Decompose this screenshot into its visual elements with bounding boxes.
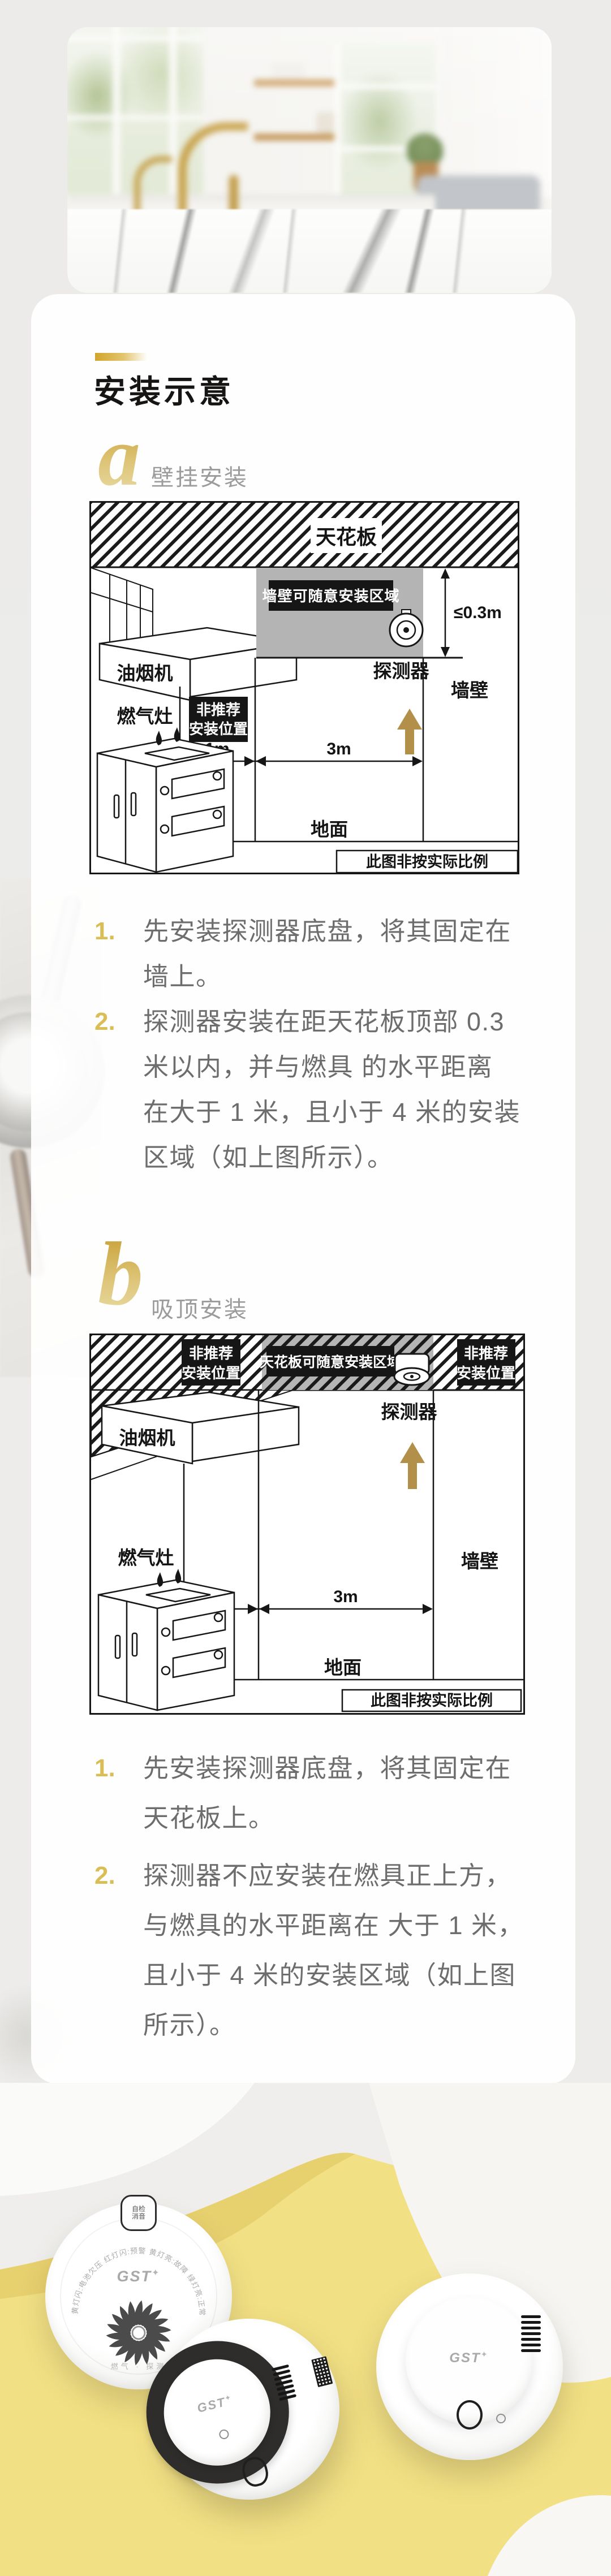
- scale-note: 此图非按实际比例: [371, 1692, 493, 1709]
- ceiling-hatch-band: [91, 503, 518, 567]
- step-number: 1.: [94, 1744, 143, 1843]
- not-recommended-box-right: 非推荐 安装位置: [457, 1339, 515, 1386]
- step-text-line: 天花板上。: [143, 1793, 511, 1843]
- gas-stove-cabinet: [98, 1580, 234, 1710]
- not-recommended-line2: 安装位置: [189, 720, 248, 737]
- gas-stove-cabinet: [97, 739, 233, 872]
- step-text-line: 所示）。: [143, 2000, 524, 2050]
- brand-mark-icon: ✦: [223, 2393, 233, 2403]
- brand-logo: GST✦: [162, 2384, 269, 2424]
- not-recommended-box-left: 非推荐 安装位置: [182, 1339, 240, 1386]
- speaker-grille: [521, 2315, 541, 2355]
- step-text-line: 先安装探测器底盘，将其固定在: [143, 909, 511, 954]
- detector-label: 探测器: [373, 661, 430, 681]
- ceiling-label: 天花板: [316, 525, 377, 549]
- hood-label: 油烟机: [117, 663, 173, 684]
- step-text-line: 探测器不应安装在燃具正上方，: [143, 1851, 524, 1901]
- zone-label: 墙壁可随意安装区域: [262, 588, 399, 605]
- vent-swirl-icon: [102, 2297, 175, 2369]
- section-b-letter: b: [98, 1228, 143, 1319]
- hood-label: 油烟机: [119, 1427, 175, 1448]
- dim-3m-label: 3m: [326, 740, 351, 758]
- step-number: 2.: [94, 999, 143, 1180]
- step-item-a2: 2. 探测器安装在距天花板顶部 0.3 米以内，并与燃具 的水平距离 在大于 1…: [94, 999, 536, 1180]
- step-number: 1.: [94, 909, 143, 999]
- scale-note-box: 此图非按实际比例: [342, 1690, 521, 1711]
- brand-logo: GST✦: [45, 2267, 232, 2285]
- not-recommended-line1: 非推荐: [189, 1345, 233, 1362]
- wall-mount-diagram: 天花板 油烟机 墙壁可随意安装区域: [89, 501, 519, 874]
- section-b-label: 吸顶安装: [151, 1291, 248, 1324]
- floor-label: 地面: [311, 819, 348, 840]
- section-a-label: 壁挂安装: [151, 459, 248, 492]
- section-a-letter: a: [98, 414, 140, 499]
- brand-logo: GST✦: [406, 2350, 532, 2366]
- step-text-line: 墙上。: [143, 954, 511, 999]
- brand-text: GST: [196, 2394, 227, 2415]
- content-card: 安装示意 a 壁挂安装 天花板: [31, 294, 575, 2084]
- detector-label: 探测器: [381, 1401, 438, 1422]
- detector-button-outline: [457, 2400, 483, 2430]
- zone-label: 天花板可随意安装区域: [260, 1354, 401, 1370]
- brand-mark-icon: ✦: [152, 2268, 161, 2278]
- step-text-line: 区域（如上图所示）。: [143, 1135, 520, 1180]
- cert-mark-icon: [496, 2414, 506, 2423]
- not-recommended-box: 非推荐 安装位置: [189, 697, 248, 742]
- title-accent-bar: [95, 353, 147, 361]
- not-recommended-line2: 安装位置: [182, 1365, 240, 1382]
- step-text-line: 探测器安装在距天花板顶部 0.3: [143, 999, 520, 1045]
- brand-text: GST: [117, 2268, 152, 2285]
- step-item-a1: 1. 先安装探测器底盘，将其固定在 墙上。: [94, 909, 536, 999]
- step-text-line: 在大于 1 米，且小于 4 米的安装: [143, 1090, 520, 1135]
- page-title: 安装示意: [94, 366, 234, 412]
- cert-mark-icon: [218, 2428, 230, 2440]
- step-item-b1: 1. 先安装探测器底盘，将其固定在 天花板上。: [94, 1744, 536, 1843]
- product-detail-page: 安装示意 a 壁挂安装 天花板: [0, 0, 611, 2576]
- wall-label: 墙壁: [461, 1551, 498, 1572]
- stove-label: 燃气灶: [118, 1547, 174, 1568]
- step-item-b2: 2. 探测器不应安装在燃具正上方， 与燃具的水平距离在 大于 1 米， 且小于 …: [94, 1851, 536, 2050]
- detector-front-view: GST✦: [376, 2273, 563, 2460]
- step-text-line: 米以内，并与燃具 的水平距离: [143, 1045, 520, 1090]
- floor-label: 地面: [324, 1657, 362, 1678]
- not-recommended-line1: 非推荐: [196, 701, 240, 718]
- not-recommended-line1: 非推荐: [464, 1345, 508, 1362]
- ceiling-mount-diagram: 非推荐 安装位置 非推荐 安装位置 天花板可随意安装区域 探测器: [89, 1334, 525, 1715]
- stove-label: 燃气灶: [117, 706, 173, 727]
- step-text-line: 且小于 4 米的安装区域（如上图: [143, 1951, 524, 2000]
- dim-3m-label: 3m: [333, 1587, 358, 1606]
- step-text-line: 先安装探测器底盘，将其固定在: [143, 1744, 511, 1793]
- brand-text: GST: [449, 2350, 480, 2366]
- kitchen-hero-photo: [67, 27, 552, 293]
- clearance-label: ≤0.3m: [454, 603, 502, 622]
- wall-label: 墙壁: [451, 680, 488, 701]
- detector-side-view-icon: [394, 1354, 429, 1385]
- scale-note: 此图非按实际比例: [366, 853, 488, 870]
- kitchen-photo-haze: [67, 27, 552, 293]
- product-showcase-section: 自检 消音 黄灯闪:电池欠压 红灯闪:预警 黄灯亮:故障 绿灯亮:正常 GST✦: [0, 2083, 611, 2576]
- not-recommended-line2: 安装位置: [457, 1365, 515, 1382]
- brand-mark-icon: ✦: [481, 2350, 489, 2359]
- step-text-line: 与燃具的水平距离在 大于 1 米，: [143, 1901, 524, 1951]
- step-number: 2.: [94, 1851, 143, 2050]
- scale-note-box: 此图非按实际比例: [337, 851, 518, 873]
